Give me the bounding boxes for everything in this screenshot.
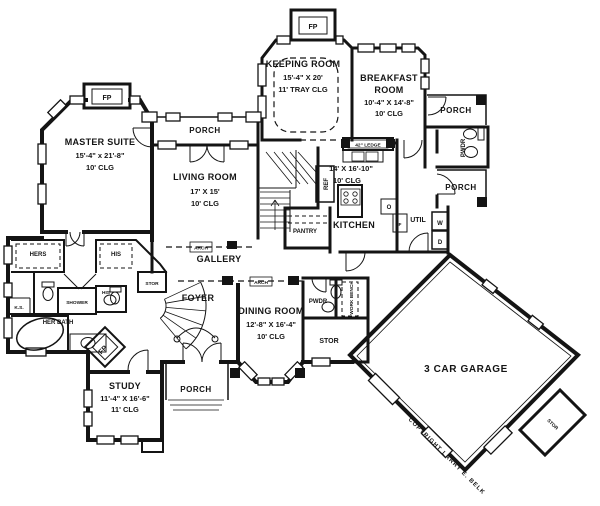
porch-rail (218, 113, 232, 121)
window-icon (38, 144, 46, 164)
pantry-shelves (288, 216, 328, 223)
her-bath-label: HER BATH (43, 320, 74, 326)
stor-label: STOR (319, 338, 338, 345)
knee-space-label: K.S. (14, 305, 23, 311)
porch-rail (166, 113, 180, 121)
door-swing (128, 350, 148, 370)
room-clg-study: 11' CLG (111, 405, 139, 414)
room-label-breakfast: BREAKFAST (360, 73, 418, 83)
front-door (202, 343, 221, 362)
pwdr-label: PWDR (309, 299, 328, 305)
column-post (295, 368, 305, 378)
sink-icon (104, 295, 116, 305)
porch-label: PORCH (445, 183, 476, 192)
his-vanity-label: HIS (102, 290, 111, 296)
closet-doors (64, 274, 96, 289)
room-label-study: STUDY (109, 381, 141, 391)
column-post (222, 276, 233, 285)
window-icon (336, 36, 343, 44)
french-door (207, 145, 224, 162)
railing-volute (212, 336, 218, 342)
room-label-kitchen: KITCHEN (333, 220, 375, 230)
arch-label: ARCH (254, 280, 268, 286)
room-clg-master: 10' CLG (86, 163, 114, 172)
porch-label: PORCH (180, 385, 211, 394)
door-swing (346, 252, 365, 271)
fireplace-label: FP (103, 95, 112, 102)
toilet-icon (42, 282, 54, 301)
porch-column-base (246, 112, 261, 122)
dryer-label: D (438, 240, 443, 246)
window-icon (4, 283, 12, 297)
french-door (190, 145, 207, 162)
window-icon (4, 318, 12, 338)
floor-plan-drawing: KEEPING ROOM 15'-4" X 20' 11' TRAY CLG B… (0, 0, 600, 506)
tray-ceiling-outline (274, 58, 338, 132)
room-label-dining: DINING ROOM (238, 306, 303, 316)
room-dims-study: 11'-4" X 16'-6" (100, 394, 150, 403)
room-dims-living: 17' X 15' (190, 187, 220, 196)
window-icon (358, 44, 374, 52)
window-icon (421, 59, 429, 73)
window-icon (158, 141, 176, 149)
window-icon (70, 96, 84, 104)
window-icon (239, 362, 257, 381)
window-icon (312, 358, 330, 366)
room-dims-breakfast: 10'-4" X 14'-8" (364, 98, 414, 107)
porch-steps (168, 400, 224, 410)
window-icon (402, 44, 415, 52)
window-icon (84, 412, 92, 426)
copyright-label: COPYRIGHT LARRY E. BELK (407, 417, 486, 496)
railing-volute (174, 336, 180, 342)
ledge-label: 42" LEDGE (355, 143, 381, 149)
window-icon (277, 36, 290, 44)
fireplace-label: FP (309, 24, 318, 31)
porch-label: PORCH (440, 106, 471, 115)
door-swing (66, 232, 80, 246)
window-icon (4, 246, 12, 264)
window-icon (482, 279, 497, 293)
door-swing (409, 233, 428, 252)
garage-walls (350, 255, 585, 470)
floor-plan: KEEPING ROOM 15'-4" X 20' 11' TRAY CLG B… (0, 0, 600, 506)
work-bench-label: WORK BENCH (349, 281, 355, 315)
column-post (230, 368, 240, 378)
porch-column-base (142, 112, 157, 122)
room-dims-keeping: 15'-4" X 20' (283, 73, 323, 82)
room-label-living: LIVING ROOM (173, 172, 237, 182)
garage-door (368, 373, 399, 404)
range-icon (338, 185, 362, 217)
room-clg-kitchen: 10' CLG (333, 176, 361, 185)
oven-label: O (387, 205, 392, 211)
furnace-label: F (399, 222, 402, 228)
stor-label: STOR (145, 281, 159, 287)
bathtub-icon (13, 312, 68, 355)
pantry-label: PANTRY (293, 229, 317, 235)
porch-label: PORCH (189, 126, 220, 135)
kitchen-sink-icon (343, 150, 383, 162)
room-label-gallery: GALLERY (197, 254, 242, 264)
room-label-keeping: KEEPING ROOM (266, 59, 341, 69)
hers-closet-label: HERS (30, 252, 47, 258)
room-clg-living: 10' CLG (191, 199, 219, 208)
window-icon (380, 44, 396, 52)
stair-railing (177, 328, 215, 338)
room-dims-kitchen: 14' X 16'-10" (329, 164, 373, 173)
util-label: UTIL (410, 217, 426, 224)
toilet-icon (464, 128, 485, 140)
washer-label: W (437, 221, 443, 227)
room-label-master: MASTER SUITE (65, 137, 136, 147)
room-label-foyer: FOYER (182, 293, 215, 303)
window-icon (38, 184, 46, 204)
room-dims-master: 15'-4" x 21'-8" (75, 151, 124, 160)
arch-label: ARCH (194, 246, 208, 252)
door-swing (312, 278, 326, 292)
stor-label: STOR (545, 418, 559, 432)
window-icon (258, 378, 270, 385)
front-door (183, 343, 202, 362)
window-icon (230, 141, 248, 149)
pwdr-label: PWDR (461, 138, 467, 157)
garage-inner-line (357, 262, 571, 462)
his-closet-label: HIS (111, 252, 121, 258)
window-icon (130, 96, 140, 104)
door-swing (404, 140, 422, 158)
garage-outline (350, 255, 578, 470)
room-clg-dining: 10' CLG (257, 332, 285, 341)
window-icon (272, 378, 284, 385)
door-swing (70, 232, 84, 246)
room-dims-dining: 12'-8" X 16'-4" (246, 320, 296, 329)
window-icon (84, 390, 92, 407)
door-swing (133, 128, 152, 147)
window-icon (528, 315, 543, 329)
main-staircase (258, 150, 316, 232)
garage-door (484, 426, 512, 454)
room-label-breakfast: ROOM (374, 85, 403, 95)
column-post (477, 197, 487, 207)
shower-label: SHOWER (66, 300, 88, 306)
window-icon (97, 436, 114, 444)
room-label-garage: 3 CAR GARAGE (424, 364, 508, 375)
window-icon (48, 100, 66, 118)
room-clg-keeping: 11' TRAY CLG (278, 85, 327, 94)
column-post (227, 241, 237, 249)
window-icon (121, 436, 138, 444)
window-icon (421, 77, 429, 89)
column-post (288, 276, 299, 285)
refrigerator-label: REF (324, 178, 330, 190)
room-clg-breakfast: 10' CLG (375, 109, 403, 118)
column-post (476, 95, 486, 105)
